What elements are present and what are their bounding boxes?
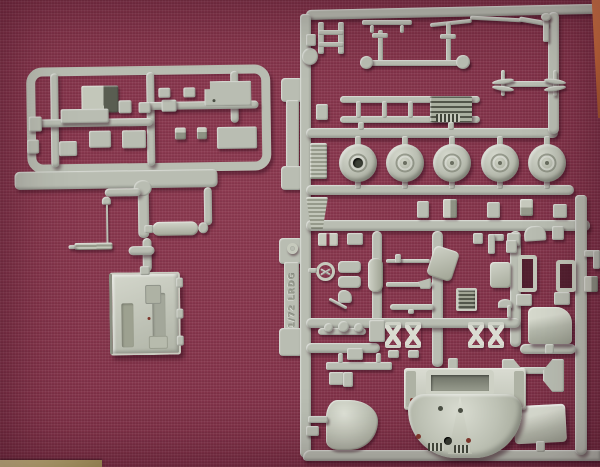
tray-box-detail xyxy=(149,336,168,349)
part-gear-lever xyxy=(330,290,354,312)
ladder-rung xyxy=(356,101,361,118)
wheel-axle-hole xyxy=(353,158,363,168)
radiator-teeth xyxy=(428,443,444,451)
part-x-frame xyxy=(488,322,504,348)
part-road-wheel xyxy=(386,144,424,182)
part-small-fitting xyxy=(443,199,457,218)
runner-divider-rail xyxy=(306,220,590,231)
part-windscreen-frame xyxy=(518,255,537,292)
stub xyxy=(448,122,454,130)
wheel-hub-dot xyxy=(545,161,549,165)
stub xyxy=(358,122,364,130)
ejector-pin-mark xyxy=(212,99,215,102)
ejector-ring-mark xyxy=(287,243,298,254)
wheel-hub-dot xyxy=(450,161,454,165)
part-small-fitting xyxy=(318,233,338,246)
engine-ribs xyxy=(436,114,460,122)
rifle-grip xyxy=(395,254,401,263)
part-bed-panel xyxy=(217,126,257,149)
stub xyxy=(308,268,317,273)
left-sprue xyxy=(12,56,288,362)
radiator-teeth xyxy=(454,445,470,453)
nose-cone-body xyxy=(326,400,378,450)
runner-mid-rail xyxy=(306,128,558,138)
part-cab-floor-tray xyxy=(109,272,181,356)
tray-connector-nub xyxy=(140,266,150,275)
spring-bump xyxy=(354,323,363,332)
tray-seat-base xyxy=(121,303,134,347)
part-nose-cone xyxy=(320,396,380,454)
bracket-bar xyxy=(338,22,344,54)
part-clip xyxy=(175,127,186,139)
part-rifle xyxy=(390,299,434,314)
rifle-magazine xyxy=(408,309,414,314)
ladder-rung xyxy=(382,101,387,118)
nose-cone-stub xyxy=(308,416,328,423)
bonnet-dot xyxy=(458,408,463,413)
part-plank xyxy=(61,109,109,124)
sprue-label-tab-bar: 1/72 LRDG xyxy=(284,262,299,330)
part-small-fitting xyxy=(553,204,567,218)
tray-box-detail xyxy=(145,285,161,304)
hanger-cross xyxy=(372,33,388,38)
part-windscreen-frame xyxy=(556,260,576,292)
stub xyxy=(536,441,545,452)
headlamp-mark xyxy=(416,434,421,439)
part-rifle xyxy=(386,254,430,267)
part-curved-seat xyxy=(524,225,547,241)
mount-wedge xyxy=(543,359,564,392)
part-small-box xyxy=(552,226,564,240)
rifle-barrel xyxy=(386,259,430,263)
part-small-bracket xyxy=(316,104,328,120)
part-clip xyxy=(197,127,207,139)
part-antenna-tip xyxy=(68,245,75,249)
part-seat-pair xyxy=(338,261,361,289)
part-road-wheel xyxy=(481,144,519,182)
part-frame-leg xyxy=(343,372,353,387)
part-engine-block xyxy=(430,96,472,122)
part-fender xyxy=(528,307,572,344)
bracket-cross xyxy=(318,30,344,35)
part-axle-rod xyxy=(364,60,470,66)
headlamp-mark xyxy=(466,438,471,443)
part-twin-axle xyxy=(494,70,564,98)
part-small-box xyxy=(347,348,363,360)
part-door-panel xyxy=(490,262,511,288)
part-seat-back xyxy=(488,234,504,254)
part-seat-cushion xyxy=(89,131,111,148)
runner xyxy=(204,187,213,225)
spring-bump xyxy=(338,321,349,332)
stub xyxy=(545,344,554,354)
ladder-rung xyxy=(408,101,413,118)
rack-leg xyxy=(370,25,374,33)
runner-horizontal xyxy=(306,343,380,353)
bonnet-dot xyxy=(438,406,443,411)
nose-cone-fitting xyxy=(306,426,319,436)
part-road-wheel xyxy=(433,144,471,182)
part-x-frame xyxy=(405,322,421,348)
bracket-cross xyxy=(318,42,344,47)
part-x-frame xyxy=(468,322,484,348)
part-box-small xyxy=(183,87,195,97)
part-disc xyxy=(302,48,318,65)
rack-leg xyxy=(400,25,404,33)
part-pin xyxy=(27,140,39,154)
part-antenna-ribbed-rod xyxy=(74,243,112,251)
hanger-runner xyxy=(446,22,451,62)
part-small-fitting xyxy=(520,199,533,216)
stub xyxy=(376,353,381,363)
part-transfer-case xyxy=(310,143,327,179)
runner xyxy=(129,246,155,255)
part-box-small xyxy=(118,100,131,113)
part-box-small xyxy=(158,88,170,98)
seat-cushion xyxy=(338,276,361,288)
part-small-fitting xyxy=(417,201,429,218)
part-small-box xyxy=(506,240,517,253)
hook-stem xyxy=(507,305,511,318)
sprue-scale-marking: 1/72 LRDG xyxy=(287,264,296,328)
wheel-hub-dot xyxy=(498,161,502,165)
hanger-cross xyxy=(440,34,456,39)
part-fuel-tank-cap xyxy=(198,222,208,233)
part-x-frame xyxy=(385,322,401,348)
axle-ball-joint xyxy=(360,56,373,69)
part-valve-ball xyxy=(541,13,551,21)
right-sprue xyxy=(298,0,600,467)
part-hook-lever xyxy=(498,299,516,318)
part-road-wheel xyxy=(528,144,566,182)
tray-red-dot xyxy=(148,317,151,320)
wheel-hub-dot xyxy=(403,161,407,165)
part-tow-rod xyxy=(430,19,472,27)
part-small-fitting xyxy=(473,233,483,244)
rifle-stock xyxy=(418,278,431,289)
part-seat-cushion xyxy=(59,141,77,156)
crank-hole xyxy=(444,437,452,445)
part-foot xyxy=(388,350,399,358)
runner xyxy=(105,188,141,197)
part-roof-rack xyxy=(362,20,412,33)
spring-bump xyxy=(324,323,333,332)
lever-body xyxy=(338,290,352,303)
seat-back-bar xyxy=(488,234,495,254)
part-small-box xyxy=(329,372,344,385)
part-box-small xyxy=(139,102,151,113)
part-frame-bar xyxy=(326,362,392,370)
tray-hinge-stub xyxy=(176,278,183,288)
seat-cushion xyxy=(338,261,361,273)
part-block xyxy=(369,320,385,342)
part-seat-cushion xyxy=(122,130,146,148)
part-bed-panel xyxy=(204,81,251,107)
part-tow-rod xyxy=(470,16,522,23)
runner-mid-rail xyxy=(306,185,574,195)
left-sprue-bottom-bar xyxy=(14,169,217,190)
part-l-bracket xyxy=(584,276,598,292)
part-rifle xyxy=(386,277,432,291)
part-road-wheel xyxy=(339,144,377,182)
part-box-small xyxy=(161,100,176,112)
part-small-fitting xyxy=(347,233,363,245)
part-small-box xyxy=(554,292,570,305)
part-antenna-mast xyxy=(106,205,109,245)
part-small-bracket xyxy=(306,34,316,46)
tray-hinge-stub xyxy=(177,336,184,346)
part-pin xyxy=(29,117,42,132)
stub xyxy=(144,225,153,233)
cab-windshield-frame xyxy=(426,370,494,396)
part-cab-front-assembly xyxy=(402,356,528,460)
tray-hinge-stub xyxy=(176,309,183,319)
part-leaf-spring-axle xyxy=(318,320,366,342)
runner-left-rail xyxy=(300,14,311,458)
bracket-bar xyxy=(318,22,324,54)
part-l-bracket xyxy=(584,250,600,269)
runner-right-rail xyxy=(575,195,587,455)
part-small-box xyxy=(516,294,532,306)
part-cylinder xyxy=(368,258,383,292)
part-chassis-bracket xyxy=(318,22,344,54)
part-antenna-base xyxy=(102,197,111,205)
rack-bar xyxy=(362,20,412,25)
axle-ball-joint xyxy=(456,55,470,69)
stub xyxy=(338,353,343,363)
part-small-fitting xyxy=(487,202,500,218)
part-steering-wheel xyxy=(316,262,335,281)
part-radiator-grille xyxy=(456,288,477,311)
table-strip-edge xyxy=(0,460,102,467)
bracket-bar xyxy=(593,250,600,269)
part-fuel-tank xyxy=(152,221,198,236)
photo-background-fabric: 1/72 LRDG xyxy=(0,0,600,467)
